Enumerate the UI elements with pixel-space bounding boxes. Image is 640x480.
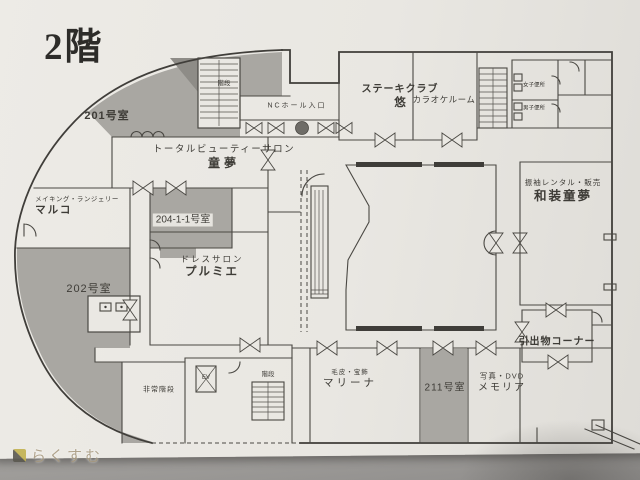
label-room-211: 211号室 [425, 382, 466, 395]
floorplan-photo: 2階 201号室 階段 トータルビューティーサロン 童夢 NCホール入口 ステー… [0, 0, 640, 480]
label-fur-jewelry: 毛皮・宝飾 マリーナ [323, 369, 377, 391]
label-elevator: EV [202, 375, 210, 383]
label-nc-hall-entrance: NCホール入口 [267, 101, 326, 110]
label-stairs-bottom: 階段 [262, 371, 275, 379]
dress-salon-category: ドレスサロン [180, 254, 243, 265]
label-lingerie-shop: メイキング・ランジェリー マルコ [35, 196, 119, 218]
room-204-text: 204-1-1号室 [153, 214, 213, 227]
watermark: らくすむ [13, 445, 103, 466]
label-karaoke: カラオケルーム [413, 94, 476, 105]
label-dress-salon: ドレスサロン プルミエ [180, 254, 243, 280]
label-gift-corner: 引出物コーナー [519, 336, 596, 349]
label-stairs-top: 階段 [218, 80, 231, 88]
lingerie-shop-category: メイキング・ランジェリー [35, 196, 119, 204]
lingerie-shop-name: マルコ [35, 204, 119, 218]
beauty-salon-name: 童夢 [153, 156, 295, 172]
watermark-logo-icon [13, 449, 26, 462]
label-kimono-shop: 振袖レンタル・販売 和装童夢 [525, 178, 602, 204]
label-beauty-salon: トータルビューティーサロン 童夢 [153, 144, 295, 172]
kimono-shop-category: 振袖レンタル・販売 [525, 178, 602, 188]
watermark-text: らくすむ [31, 445, 103, 466]
label-photo-shop: 写真・DVD メモリア [478, 372, 526, 395]
label-room-202: 202号室 [66, 282, 111, 296]
kimono-shop-name: 和装童夢 [525, 188, 602, 204]
label-room-204: 204-1-1号室 [153, 214, 213, 227]
fur-jewelry-category: 毛皮・宝飾 [323, 369, 377, 377]
fur-jewelry-name: マリーナ [323, 377, 377, 391]
label-emergency-stairs: 非常階段 [143, 385, 175, 394]
label-toilet-women: 女子便所 [523, 82, 545, 89]
label-room-201: 201号室 [84, 109, 129, 123]
photo-shop-category: 写真・DVD [478, 372, 526, 382]
label-toilet-men: 男子便所 [523, 105, 545, 112]
floor-title: 2階 [44, 24, 104, 72]
photo-shop-name: メモリア [478, 381, 526, 394]
dress-salon-name: プルミエ [180, 265, 243, 280]
beauty-salon-category: トータルビューティーサロン [153, 144, 295, 156]
